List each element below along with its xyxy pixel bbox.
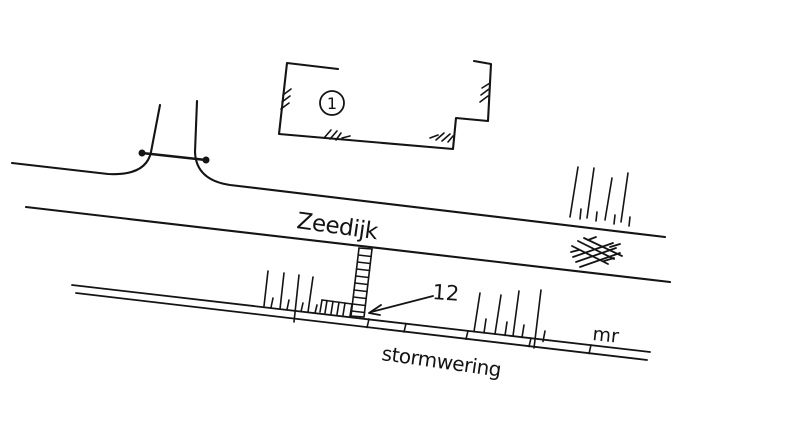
- tick-group-left-icon: [264, 271, 317, 322]
- barrier-lower-line: [76, 293, 647, 360]
- side-street-left-edge: [12, 105, 160, 174]
- crossbar-dot-right-icon: [203, 157, 210, 164]
- building-number-badge: 1: [320, 91, 344, 115]
- leader-arrow-12: [369, 296, 433, 315]
- structure-number-label: 12: [432, 280, 460, 306]
- stormwering-barrier: [72, 285, 650, 360]
- crossbar-dot-left-icon: [139, 150, 146, 157]
- map-drawing: 1: [0, 0, 800, 422]
- building-wall-path: [279, 61, 491, 149]
- building-number-label: 1: [327, 94, 337, 113]
- hatched-wall-ladder-icon: [351, 248, 372, 317]
- tick-group-upper-icon: [570, 167, 630, 226]
- note-label: mr: [591, 323, 620, 348]
- wall-hatch-step-icon: [430, 133, 453, 142]
- building-outline: 1: [279, 61, 491, 149]
- barrier-upper-line: [72, 285, 650, 352]
- tick-group-right-icon: [474, 290, 545, 348]
- site-sketch-map: 1: [0, 0, 800, 422]
- barrier-name-label: stormwering: [380, 341, 502, 381]
- crosshatch-patch-icon: [571, 237, 622, 267]
- arrow-line: [371, 296, 433, 312]
